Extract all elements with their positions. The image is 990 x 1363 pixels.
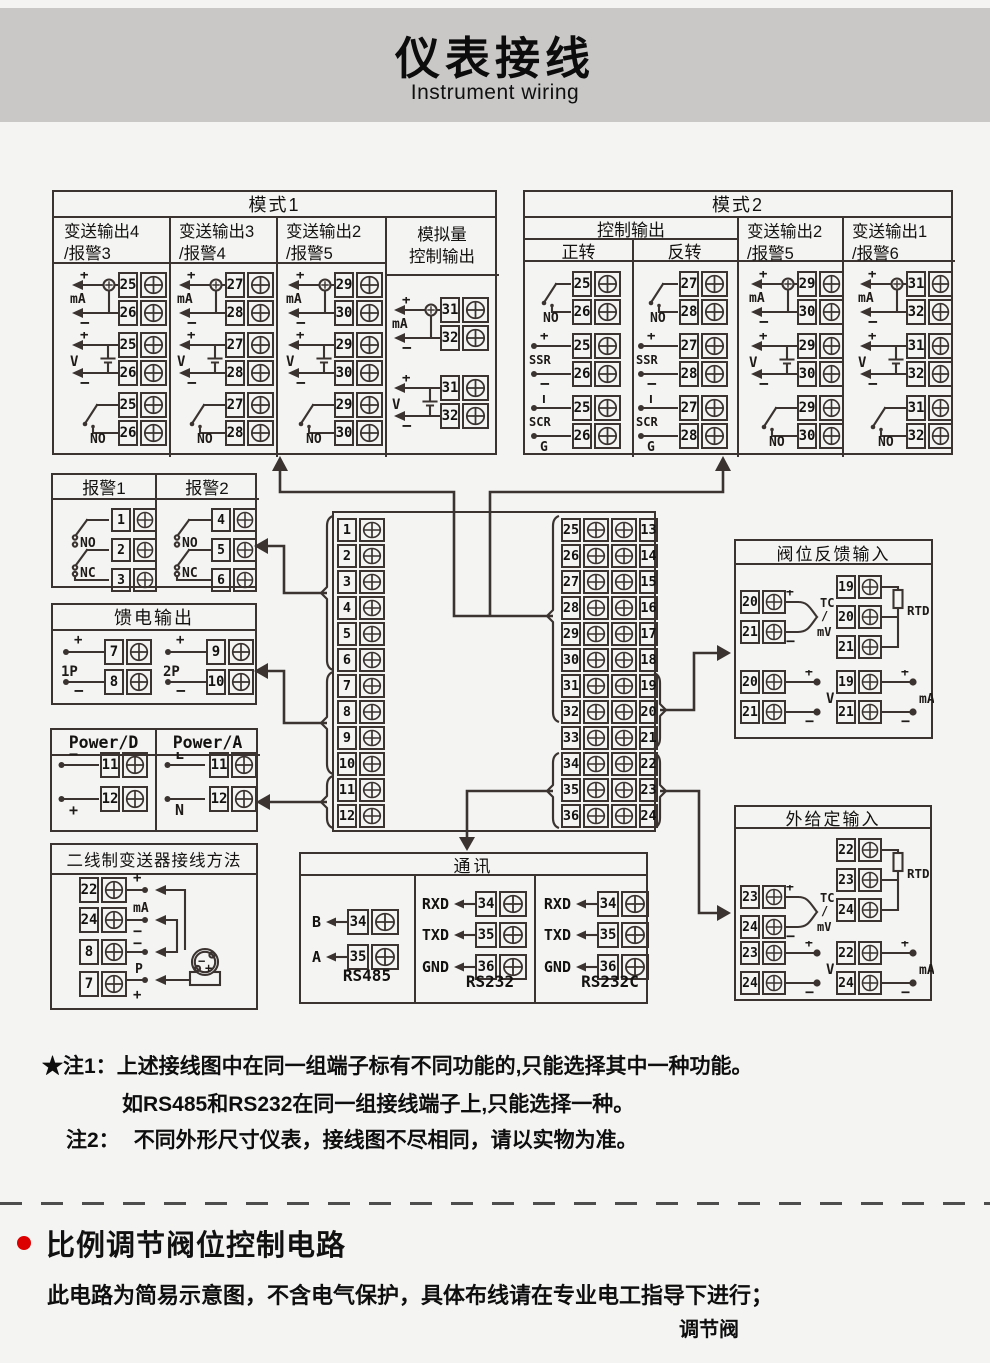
terminal-number: 2 bbox=[111, 538, 131, 562]
header-line: 控制输出 bbox=[385, 246, 499, 268]
terminal-number: 21 bbox=[836, 635, 856, 659]
terminal-number: 28 bbox=[679, 423, 699, 449]
note-1-label: ★注1： bbox=[42, 1055, 117, 1078]
terminal-number: 24 bbox=[836, 898, 856, 922]
terminal-number: 20 bbox=[639, 700, 658, 724]
symbol-label: V bbox=[826, 962, 835, 978]
terminal-number: 34 bbox=[561, 752, 581, 776]
terminal: 1 bbox=[111, 508, 157, 532]
terminal-number: 29 bbox=[334, 332, 354, 358]
symbol-label: + bbox=[80, 332, 88, 343]
screw-terminal-icon bbox=[499, 891, 527, 917]
terminal-number: 9 bbox=[337, 726, 357, 750]
symbol-label: − bbox=[80, 373, 90, 390]
column-header: 变送输出2/报警5 bbox=[276, 218, 385, 264]
column-header: 变送输出2/报警5 bbox=[737, 218, 842, 262]
terminal-number: 18 bbox=[639, 648, 658, 672]
terminal: 21 bbox=[836, 635, 882, 659]
symbol-label: − bbox=[402, 416, 412, 433]
screw-terminal-icon bbox=[233, 538, 257, 562]
screw-terminal-icon bbox=[356, 300, 383, 326]
screw-terminal-icon bbox=[247, 300, 274, 326]
symbol-label: − bbox=[176, 681, 186, 700]
screw-terminal-icon bbox=[583, 570, 609, 594]
terminal-number: 28 bbox=[225, 300, 245, 326]
terminal-number: 31 bbox=[906, 271, 926, 297]
screw-terminal-icon bbox=[594, 423, 621, 449]
terminal: 25 bbox=[572, 271, 621, 297]
screw-terminal-icon bbox=[611, 674, 637, 698]
screw-terminal-icon bbox=[621, 922, 649, 948]
symbol-label: L bbox=[175, 752, 184, 763]
column-header: 变送输出3/报警4 bbox=[169, 218, 276, 264]
wiring-symbol: +−mA bbox=[858, 271, 906, 329]
terminal-number: 30 bbox=[797, 423, 817, 449]
symbol-label: SSR bbox=[636, 353, 658, 367]
terminal-number: 31 bbox=[440, 297, 460, 323]
terminal: 29 bbox=[797, 333, 844, 359]
screw-terminal-icon bbox=[140, 360, 167, 386]
terminal-number: 21 bbox=[639, 726, 658, 750]
screw-terminal-icon bbox=[858, 635, 882, 659]
symbol-label: V bbox=[177, 354, 186, 370]
screw-terminal-icon bbox=[462, 297, 489, 323]
header-line: /报警6 bbox=[852, 243, 955, 265]
wiring-symbol: +−V bbox=[784, 670, 839, 728]
terminal-number: 1 bbox=[337, 518, 357, 542]
terminal-number: 34 bbox=[597, 891, 619, 917]
header-line: /报警3 bbox=[64, 243, 169, 265]
terminal-row: 3018 bbox=[561, 648, 658, 672]
screw-terminal-icon bbox=[359, 700, 385, 724]
wiring-symbol: LN bbox=[163, 752, 205, 820]
terminal-number: 7 bbox=[104, 639, 124, 665]
terminal: 20 bbox=[740, 590, 786, 614]
symbol-label: TC bbox=[820, 596, 834, 610]
symbol-label: − bbox=[540, 374, 550, 391]
screw-terminal-icon bbox=[928, 395, 953, 421]
symbol-label: − bbox=[759, 312, 769, 329]
screw-terminal-icon bbox=[133, 568, 157, 592]
symbol-label: − bbox=[647, 374, 657, 391]
terminal: 31 bbox=[906, 395, 953, 421]
header-line: /报警5 bbox=[747, 243, 842, 265]
terminal: 11 bbox=[100, 752, 148, 778]
terminal: 21 bbox=[836, 700, 882, 724]
terminal-number: 30 bbox=[797, 299, 817, 325]
screw-terminal-icon bbox=[359, 648, 385, 672]
terminal: 6 bbox=[337, 648, 385, 672]
screw-terminal-icon bbox=[101, 907, 127, 933]
symbol-label: mA bbox=[749, 291, 765, 306]
note-1-text: 上述接线图中在同一组端子标有不同功能的,只能选择其中一种功能。 bbox=[117, 1055, 753, 1078]
symbol-label: + bbox=[133, 987, 141, 1003]
pin-label: RXD bbox=[541, 895, 575, 913]
screw-terminal-icon bbox=[858, 575, 882, 599]
terminal-number: 32 bbox=[906, 299, 926, 325]
symbol-label: mA bbox=[286, 292, 302, 307]
valve-caption: 调节阀 bbox=[679, 1313, 739, 1342]
mode1-panel: 模式1变送输出4/报警3变送输出3/报警4变送输出2/报警5模拟量控制输出+−m… bbox=[52, 190, 497, 455]
terminal: 25 bbox=[118, 272, 167, 298]
page-title: 仪表接线 bbox=[0, 8, 990, 87]
terminal-number: 29 bbox=[797, 333, 817, 359]
terminal-number: 12 bbox=[209, 786, 229, 812]
screw-terminal-icon bbox=[594, 271, 621, 297]
terminal-number: 26 bbox=[118, 300, 138, 326]
terminal-number: 26 bbox=[118, 360, 138, 386]
screw-terminal-icon bbox=[819, 333, 844, 359]
symbol-label: − bbox=[759, 374, 769, 391]
interface-caption: RS232 bbox=[434, 972, 546, 991]
alarm-panel: 报警1报警2NONC123NONC456 bbox=[51, 473, 257, 588]
terminal-number: 20 bbox=[836, 605, 856, 629]
section-body: 此电路为简易示意图，不含电气保护，具体布线请在专业电工指导下进行； bbox=[47, 1278, 773, 1310]
terminal-number: 26 bbox=[572, 361, 592, 387]
terminal: 3 bbox=[337, 570, 385, 594]
terminal-row: 2715 bbox=[561, 570, 658, 594]
terminal-number: 25 bbox=[572, 333, 592, 359]
valve-feedback-panel: 阀位反馈输入2021+−TC/mV192021RTD2021+−V1921+−m… bbox=[734, 539, 933, 739]
wiring-symbol: RTD bbox=[880, 575, 935, 663]
terminal-number: 35 bbox=[475, 922, 497, 948]
terminal-row: 3624 bbox=[561, 804, 658, 828]
terminal-number: 22 bbox=[639, 752, 658, 776]
mode2-panel: 模式2控制输出正转反转变送输出2/报警5变送输出1/报警6NO2526+−SSR… bbox=[523, 190, 953, 455]
terminal: 7 bbox=[79, 971, 127, 997]
screw-terminal-icon bbox=[359, 726, 385, 750]
screw-terminal-icon bbox=[247, 332, 274, 358]
header-line: 变送输出2 bbox=[747, 221, 842, 243]
arrow-left-icon bbox=[453, 891, 475, 917]
terminal-number: 29 bbox=[797, 395, 817, 421]
screw-terminal-icon bbox=[462, 325, 489, 351]
screw-terminal-icon bbox=[583, 726, 609, 750]
screw-terminal-icon bbox=[583, 648, 609, 672]
symbol-label: − bbox=[402, 338, 412, 355]
symbol-label: NO bbox=[769, 435, 785, 450]
screw-terminal-icon bbox=[133, 538, 157, 562]
screw-terminal-icon bbox=[594, 395, 621, 421]
terminal: 22 bbox=[836, 838, 882, 862]
column-divider bbox=[155, 730, 157, 830]
column-header: 控制输出 bbox=[525, 218, 737, 240]
terminal-row: 3321 bbox=[561, 726, 658, 750]
symbol-label: RTD bbox=[907, 866, 930, 881]
symbol-label: − bbox=[74, 681, 84, 700]
symbol-label: T bbox=[647, 395, 655, 407]
symbol-label: − bbox=[901, 712, 910, 728]
terminal-number: 32 bbox=[440, 325, 460, 351]
screw-terminal-icon bbox=[928, 333, 953, 359]
wiring-symbol: NONC bbox=[161, 508, 211, 592]
screw-terminal-icon bbox=[762, 670, 786, 694]
terminal-number: 31 bbox=[906, 333, 926, 359]
pin-label: RXD bbox=[419, 895, 453, 913]
terminal-row: 2917 bbox=[561, 622, 658, 646]
terminal: 28 bbox=[679, 423, 728, 449]
screw-terminal-icon bbox=[928, 271, 953, 297]
screw-terminal-icon bbox=[583, 622, 609, 646]
screw-terminal-icon bbox=[858, 898, 882, 922]
terminal: 28 bbox=[679, 299, 728, 325]
screw-terminal-icon bbox=[228, 639, 254, 665]
screw-terminal-icon bbox=[858, 868, 882, 892]
wiring-symbol: NO bbox=[858, 395, 906, 453]
terminal-number: 26 bbox=[118, 420, 138, 446]
terminal: 26 bbox=[572, 299, 621, 325]
terminal-number: 12 bbox=[337, 804, 357, 828]
terminal-number: 6 bbox=[211, 568, 231, 592]
column-header: 正转 bbox=[525, 240, 632, 262]
screw-terminal-icon bbox=[359, 544, 385, 568]
symbol-label: V bbox=[858, 355, 867, 371]
terminal-number: 17 bbox=[639, 622, 658, 646]
terminal-number: 2 bbox=[337, 544, 357, 568]
screw-terminal-icon bbox=[462, 403, 489, 429]
section-bullet-icon bbox=[17, 1236, 31, 1250]
screw-terminal-icon bbox=[928, 299, 953, 325]
screw-terminal-icon bbox=[140, 332, 167, 358]
terminal-number: 29 bbox=[797, 271, 817, 297]
symbol-label: 2P bbox=[163, 664, 180, 680]
terminal-number: 24 bbox=[79, 907, 99, 933]
screw-terminal-icon bbox=[101, 971, 127, 997]
symbol-label: + bbox=[187, 272, 195, 283]
pin-label: TXD bbox=[541, 926, 575, 944]
wiring-symbol: +−mA bbox=[880, 670, 934, 728]
terminal: 25 bbox=[572, 395, 621, 421]
screw-terminal-icon bbox=[611, 804, 637, 828]
column-header: 报警2 bbox=[155, 475, 259, 500]
terminal-number: 8 bbox=[104, 669, 124, 695]
terminal: 32 bbox=[906, 423, 953, 449]
screw-terminal-icon bbox=[359, 518, 385, 542]
terminal: 9 bbox=[337, 726, 385, 750]
screw-terminal-icon bbox=[611, 700, 637, 724]
column-header: 反转 bbox=[632, 240, 737, 262]
terminal: 31 bbox=[440, 297, 489, 323]
terminal: 30 bbox=[334, 300, 383, 326]
symbol-label: − bbox=[187, 373, 197, 390]
wiring-symbol: +−V bbox=[286, 332, 334, 390]
terminal-number: 7 bbox=[337, 674, 357, 698]
terminal: 30 bbox=[334, 420, 383, 446]
arrow-left-icon bbox=[325, 909, 347, 935]
terminal: 27 bbox=[225, 272, 274, 298]
column-header: 模拟量控制输出 bbox=[385, 218, 499, 276]
terminal: 10 bbox=[206, 669, 254, 695]
screw-terminal-icon bbox=[701, 271, 728, 297]
screw-terminal-icon bbox=[762, 885, 786, 909]
terminal-number: 24 bbox=[740, 915, 760, 939]
terminal-number: 25 bbox=[118, 272, 138, 298]
column-header: 变送输出1/报警6 bbox=[842, 218, 955, 262]
terminal: 21 bbox=[740, 620, 786, 644]
terminal: 28 bbox=[225, 300, 274, 326]
terminal-number: 22 bbox=[836, 941, 856, 965]
terminal-number: 20 bbox=[740, 670, 760, 694]
terminal-number: 16 bbox=[639, 596, 658, 620]
screw-terminal-icon bbox=[819, 361, 844, 387]
symbol-label: + bbox=[786, 885, 794, 895]
terminal-number: 27 bbox=[679, 395, 699, 421]
screw-terminal-icon bbox=[858, 670, 882, 694]
terminal-number: 15 bbox=[639, 570, 658, 594]
comm-pin: B34 bbox=[309, 909, 399, 935]
terminal: 3 bbox=[111, 568, 157, 592]
terminal: 24 bbox=[740, 971, 786, 995]
terminal-number: 5 bbox=[337, 622, 357, 646]
terminal-number: 19 bbox=[639, 674, 658, 698]
screw-terminal-icon bbox=[359, 752, 385, 776]
symbol-label: + bbox=[74, 635, 82, 648]
terminal-number: 24 bbox=[740, 971, 760, 995]
terminal: 26 bbox=[118, 300, 167, 326]
terminal: 1 bbox=[337, 518, 385, 542]
screw-terminal-icon bbox=[122, 786, 148, 812]
terminal-number: 23 bbox=[836, 868, 856, 892]
terminal-number: 35 bbox=[597, 922, 619, 948]
screw-terminal-icon bbox=[858, 700, 882, 724]
screw-terminal-icon bbox=[583, 752, 609, 776]
header-line: 模拟量 bbox=[385, 224, 499, 246]
screw-terminal-icon bbox=[762, 915, 786, 939]
terminal-number: 27 bbox=[561, 570, 581, 594]
screw-terminal-icon bbox=[701, 333, 728, 359]
screw-terminal-icon bbox=[356, 420, 383, 446]
terminal-row: 2513 bbox=[561, 518, 658, 542]
terminal: 29 bbox=[797, 395, 844, 421]
symbol-label: V bbox=[286, 354, 295, 370]
wiring-symbol: +−mA bbox=[392, 297, 440, 355]
terminal-number: 27 bbox=[679, 271, 699, 297]
page-header: 仪表接线 Instrument wiring bbox=[0, 8, 990, 122]
instrument-wiring-diagram: 仪表接线 Instrument wiring ★注1：上述接线图中在同一组端子标… bbox=[0, 0, 990, 1363]
terminal-number: 30 bbox=[561, 648, 581, 672]
wiring-symbol: NO bbox=[70, 392, 118, 450]
screw-terminal-icon bbox=[762, 620, 786, 644]
symbol-label: NO bbox=[80, 536, 96, 551]
terminal-number: 30 bbox=[797, 361, 817, 387]
screw-terminal-icon bbox=[126, 639, 152, 665]
symbol-label: + bbox=[69, 801, 78, 819]
terminal-number: 11 bbox=[209, 752, 229, 778]
symbol-label: + bbox=[805, 941, 813, 951]
wiring-symbol: +−V bbox=[70, 332, 118, 390]
screw-terminal-icon bbox=[247, 360, 274, 386]
column-header: 报警1 bbox=[53, 475, 155, 500]
screw-terminal-icon bbox=[583, 518, 609, 542]
pin-label: TXD bbox=[419, 926, 453, 944]
terminal: 29 bbox=[797, 271, 844, 297]
terminal-number: 30 bbox=[334, 360, 354, 386]
terminal-number: 6 bbox=[337, 648, 357, 672]
screw-terminal-icon bbox=[233, 568, 257, 592]
symbol-label: SSR bbox=[529, 353, 551, 367]
screw-terminal-icon bbox=[247, 272, 274, 298]
screw-terminal-icon bbox=[611, 726, 637, 750]
symbol-label: NC bbox=[80, 566, 96, 581]
terminal-number: 8 bbox=[79, 939, 99, 965]
terminal-number: 32 bbox=[561, 700, 581, 724]
screw-terminal-icon bbox=[611, 648, 637, 672]
terminal: 27 bbox=[225, 392, 274, 418]
symbol-label: NO bbox=[306, 432, 322, 447]
screw-terminal-icon bbox=[462, 375, 489, 401]
symbol-label: mV bbox=[817, 625, 831, 639]
terminal-number: 3 bbox=[111, 568, 131, 592]
terminal-number: 21 bbox=[740, 620, 760, 644]
symbol-label: − bbox=[296, 313, 306, 330]
terminal-number: 22 bbox=[79, 877, 99, 903]
wiring-symbol: +−V bbox=[392, 375, 440, 433]
symbol-label: SCR bbox=[529, 415, 551, 429]
screw-terminal-icon bbox=[621, 891, 649, 917]
terminal: 20 bbox=[740, 670, 786, 694]
terminal-number: 27 bbox=[679, 333, 699, 359]
terminal: 28 bbox=[225, 420, 274, 446]
screw-terminal-icon bbox=[611, 570, 637, 594]
twowire-panel: 二线制变送器接线方法222487+mA−−P+−+ bbox=[50, 843, 258, 1010]
terminal: 4 bbox=[337, 596, 385, 620]
center-block: 1251322614327154281652917630187311983220… bbox=[332, 511, 656, 832]
screw-terminal-icon bbox=[611, 752, 637, 776]
wiring-symbol: +−1P bbox=[61, 635, 104, 715]
column-header: 变送输出4/报警3 bbox=[54, 218, 169, 264]
terminal: 32 bbox=[440, 403, 489, 429]
comm-pin: TXD35 bbox=[419, 922, 527, 948]
terminal-number: 34 bbox=[475, 891, 497, 917]
terminal-number: 33 bbox=[561, 726, 581, 750]
terminal: 20 bbox=[836, 605, 882, 629]
screw-terminal-icon bbox=[611, 596, 637, 620]
symbol-label: mA bbox=[70, 292, 86, 307]
terminal-number: 10 bbox=[206, 669, 226, 695]
terminal: 19 bbox=[836, 575, 882, 599]
screw-terminal-icon bbox=[762, 590, 786, 614]
section-title: 比例调节阀位控制电路 bbox=[46, 1222, 346, 1264]
screw-terminal-icon bbox=[247, 420, 274, 446]
terminal: 27 bbox=[679, 395, 728, 421]
terminal-row: 3422 bbox=[561, 752, 658, 776]
screw-terminal-icon bbox=[858, 971, 882, 995]
note-2-text: 不同外形尺寸仪表，接线图不尽相同，请以实物为准。 bbox=[134, 1129, 638, 1152]
terminal: 10 bbox=[337, 752, 385, 776]
terminal: 9 bbox=[206, 639, 254, 665]
symbol-label: mA bbox=[392, 317, 408, 332]
terminal-number: 3 bbox=[337, 570, 357, 594]
terminal-number: 26 bbox=[572, 299, 592, 325]
terminal: 32 bbox=[906, 361, 953, 387]
header-line: /报警4 bbox=[179, 243, 276, 265]
screw-terminal-icon bbox=[701, 299, 728, 325]
terminal: 24 bbox=[740, 915, 786, 939]
symbol-label: NO bbox=[650, 311, 666, 326]
terminal-number: 12 bbox=[100, 786, 120, 812]
terminal-number: 19 bbox=[836, 575, 856, 599]
terminal-number: 31 bbox=[906, 395, 926, 421]
terminal: 25 bbox=[118, 332, 167, 358]
panel-title: 二线制变送器接线方法 bbox=[52, 845, 256, 875]
symbol-label: + bbox=[901, 941, 909, 951]
terminal-number: 25 bbox=[118, 392, 138, 418]
panel-title: 通讯 bbox=[301, 854, 646, 876]
terminal: 19 bbox=[836, 670, 882, 694]
terminal-number: 27 bbox=[225, 332, 245, 358]
terminal-number: 28 bbox=[225, 420, 245, 446]
comm-pin: RXD34 bbox=[419, 891, 527, 917]
